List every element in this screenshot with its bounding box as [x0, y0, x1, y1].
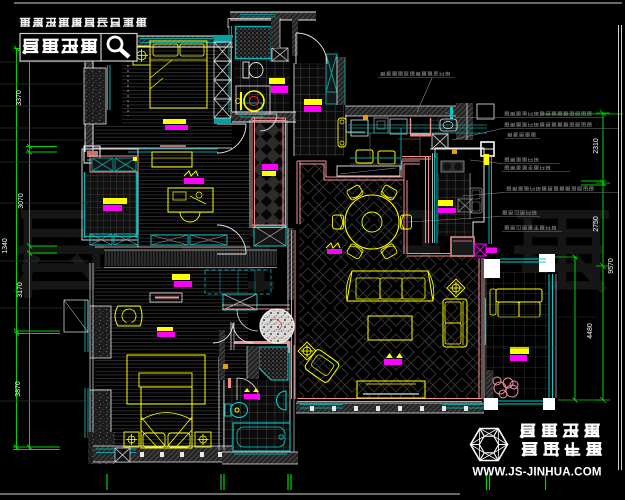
svg-text:3370: 3370	[16, 90, 23, 106]
svg-text:1340: 1340	[2, 238, 9, 254]
svg-text:4480: 4480	[587, 323, 594, 339]
svg-text:3870: 3870	[15, 381, 22, 397]
svg-text:9570: 9570	[608, 258, 615, 274]
svg-text:WWW.JS-JINHUA.COM: WWW.JS-JINHUA.COM	[472, 467, 601, 479]
svg-text:2750: 2750	[593, 216, 600, 232]
svg-text:3170: 3170	[17, 282, 24, 298]
svg-text:2310: 2310	[593, 138, 600, 154]
svg-text:3070: 3070	[18, 193, 25, 209]
